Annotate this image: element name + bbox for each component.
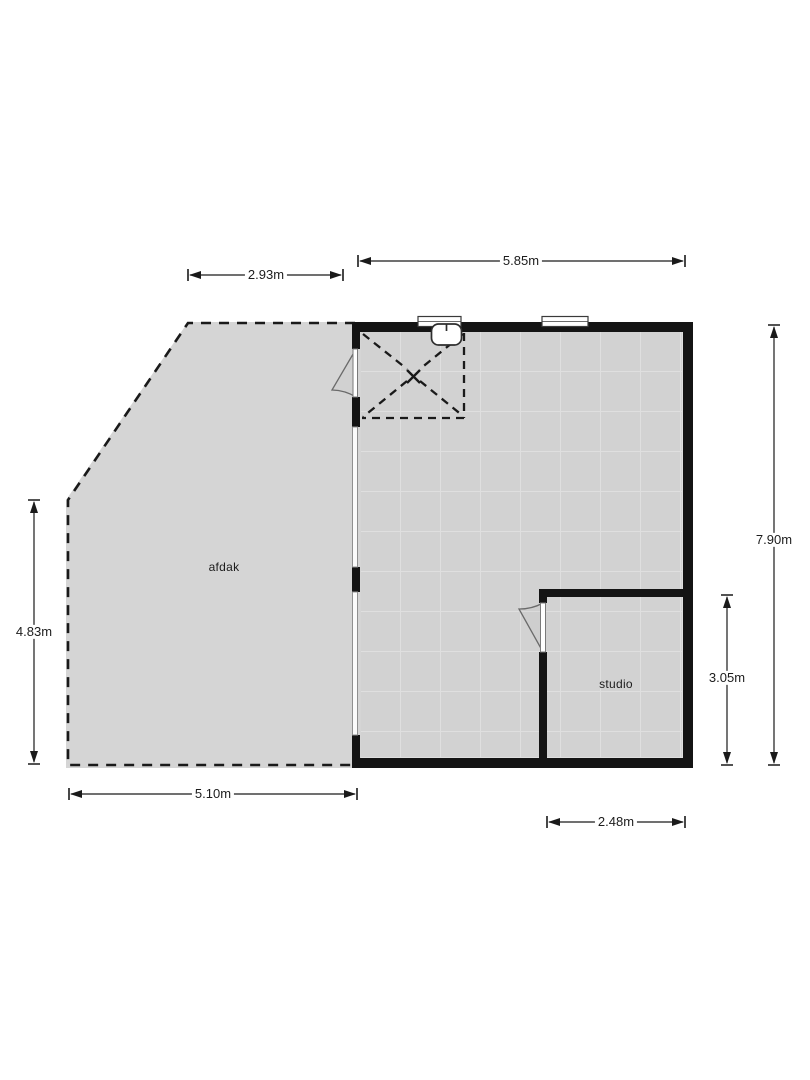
dim-label-building-right: 7.90m xyxy=(753,533,795,547)
wall-right xyxy=(683,322,693,768)
dim-label-afdak-bottom: 5.10m xyxy=(192,787,234,801)
wash-basin xyxy=(432,324,462,345)
studio-wall-left-upper xyxy=(539,589,547,603)
afdak-room-label: afdak xyxy=(209,560,240,574)
left-glass-upper xyxy=(353,427,358,567)
afdak-area xyxy=(66,322,361,768)
wall-left-segment-4 xyxy=(352,735,360,768)
skylight-cross-icon xyxy=(407,370,420,383)
floorplan-drawing xyxy=(0,0,810,1080)
dim-label-building-top: 5.85m xyxy=(500,254,542,268)
door-to-studio xyxy=(519,603,546,652)
dim-label-afdak-top: 2.93m xyxy=(245,268,287,282)
wall-left-segment-2 xyxy=(352,397,360,427)
left-glass-lower xyxy=(353,592,358,735)
wall-left-segment-1 xyxy=(352,322,360,349)
floorplan-canvas: afdak studio 2.93m 5.85m 7.90m 3.05m 4.8… xyxy=(0,0,810,1080)
studio-wall-left-lower xyxy=(539,652,547,768)
dim-label-afdak-left: 4.83m xyxy=(13,625,55,639)
door-leaf xyxy=(541,603,546,652)
door-swing-arc xyxy=(519,603,543,652)
door-leaf xyxy=(353,349,358,397)
dim-label-studio-bottom: 2.48m xyxy=(595,815,637,829)
wall-left-segment-3 xyxy=(352,567,360,592)
dim-label-studio-right: 3.05m xyxy=(706,671,748,685)
building-walls xyxy=(352,322,693,768)
wall-bottom xyxy=(355,758,693,768)
studio-wall-top xyxy=(539,589,686,597)
studio-room-label: studio xyxy=(599,677,633,691)
wall-top xyxy=(355,322,693,332)
